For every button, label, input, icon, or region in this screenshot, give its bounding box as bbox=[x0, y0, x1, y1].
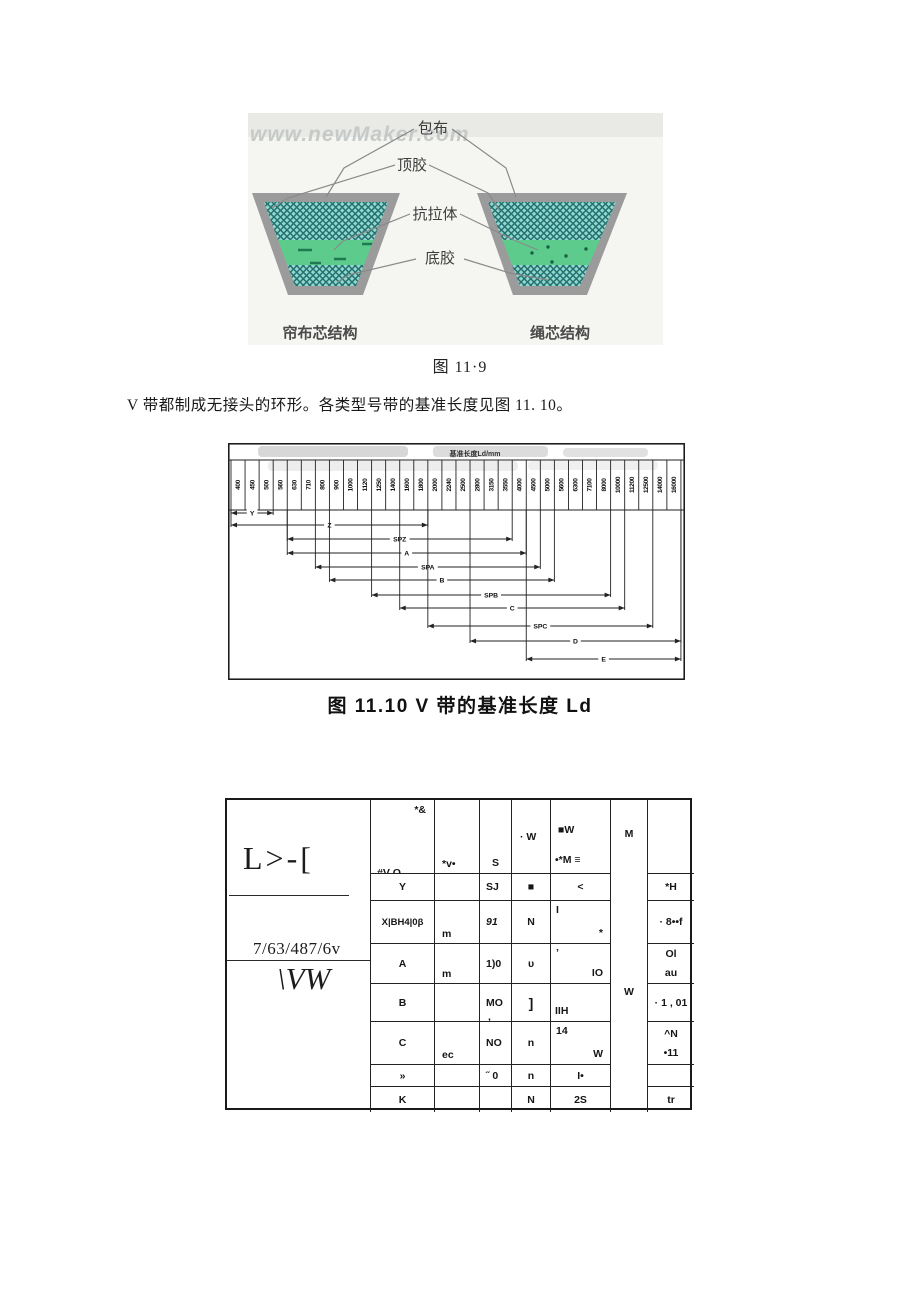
cell-c2 bbox=[434, 983, 479, 1021]
cell-c7: tr bbox=[647, 1086, 694, 1112]
length-tick-label: 1250 bbox=[376, 478, 383, 492]
length-tick-label: 16000 bbox=[671, 476, 678, 493]
length-tick-label: 2800 bbox=[474, 478, 481, 492]
cell-c7: *H bbox=[647, 873, 694, 900]
cell-c4: ] bbox=[511, 983, 550, 1021]
row-label-C: C bbox=[370, 1021, 434, 1064]
cell-c4: N bbox=[511, 900, 550, 943]
cell-c3: 1)0 bbox=[479, 943, 511, 983]
cell-c7: · 8••f bbox=[647, 900, 694, 943]
cell-c2: ec bbox=[434, 1021, 479, 1064]
length-tick-label: 11200 bbox=[629, 476, 636, 493]
length-tick-label: 2500 bbox=[460, 478, 467, 492]
cell-c3: 91 bbox=[479, 900, 511, 943]
belt-range-label: E bbox=[601, 656, 606, 663]
cell-c7: ^N•11 bbox=[647, 1021, 694, 1064]
belt-range-label: C bbox=[510, 605, 515, 612]
row-label-Y: Y bbox=[370, 873, 434, 900]
length-tick-label: 800 bbox=[320, 479, 327, 490]
header-cell-4: · W bbox=[511, 800, 550, 873]
length-tick-label: 1000 bbox=[348, 478, 355, 492]
cell-c3: NO bbox=[479, 1021, 511, 1064]
row-label-»: » bbox=[370, 1064, 434, 1086]
length-tick-label: 3150 bbox=[488, 478, 495, 492]
length-tick-label: 8000 bbox=[601, 478, 608, 492]
data-table: L>-[7/63/487/6v\VW*&#V O*v•S· W■W•*M ≡MW… bbox=[225, 798, 692, 1110]
cell-c3: SJ bbox=[479, 873, 511, 900]
belt-range-E: E bbox=[526, 510, 681, 663]
cell-c5: ’IO bbox=[550, 943, 610, 983]
length-tick-label: 14000 bbox=[657, 476, 664, 493]
length-tick-label: 630 bbox=[291, 479, 298, 490]
cell-c5: < bbox=[550, 873, 610, 900]
length-tick-label: 400 bbox=[235, 479, 242, 490]
fabric-core-label: 帘布芯结构 bbox=[282, 324, 357, 342]
callout-kanglati: 抗拉体 bbox=[412, 206, 457, 223]
header-cell-1: *&#V O bbox=[370, 800, 434, 873]
table-left-panel: L>-[7/63/487/6v\VW bbox=[227, 800, 370, 1112]
cell-c4: n bbox=[511, 1021, 550, 1064]
length-tick-label: 1800 bbox=[418, 478, 425, 492]
row-label-A: A bbox=[370, 943, 434, 983]
belt-range-A: A bbox=[287, 510, 526, 557]
length-tick-label: 2240 bbox=[446, 478, 453, 492]
belt-range-label: A bbox=[404, 550, 409, 557]
cell-c5: I* bbox=[550, 900, 610, 943]
length-chart-content: 基准长度Ld/mm4004505005606307108009001000112… bbox=[228, 444, 685, 679]
cell-c5: 14W bbox=[550, 1021, 610, 1064]
figure-11-10-caption: 图 11.10 V 带的基准长度 Ld bbox=[0, 691, 920, 718]
belt-range-label: B bbox=[439, 577, 444, 584]
cell-c4: υ bbox=[511, 943, 550, 983]
length-tick-label: 2000 bbox=[432, 478, 439, 492]
header-cell-2: *v• bbox=[434, 800, 479, 873]
cell-c5: IIH bbox=[550, 983, 610, 1021]
left-panel-text2: 7/63/487/6v bbox=[253, 939, 341, 959]
cell-c2 bbox=[434, 873, 479, 900]
header-cell-7 bbox=[647, 800, 694, 873]
header-cell-3: S bbox=[479, 800, 511, 873]
belt-range-label: Y bbox=[250, 510, 255, 517]
length-tick-label: 5600 bbox=[559, 478, 566, 492]
length-tick-label: 3550 bbox=[502, 478, 509, 492]
callout-baobu: 包布 bbox=[418, 120, 448, 137]
cell-c7 bbox=[647, 1064, 694, 1086]
length-tick-label: 710 bbox=[306, 479, 313, 490]
chart-title: 基准长度Ld/mm bbox=[449, 449, 501, 458]
row-label-X|BH4|0β: X|BH4|0β bbox=[370, 900, 434, 943]
length-tick-label: 12500 bbox=[643, 476, 650, 493]
cell-c3 bbox=[479, 1086, 511, 1112]
length-tick-label: 500 bbox=[263, 479, 270, 490]
cell-c4: ■ bbox=[511, 873, 550, 900]
row-label-B: B bbox=[370, 983, 434, 1021]
cell-c3: ˝ 0 bbox=[479, 1064, 511, 1086]
left-panel-text1: L>-[ bbox=[243, 840, 314, 877]
cell-c7: Olau bbox=[647, 943, 694, 983]
length-tick-label: 7100 bbox=[587, 478, 594, 492]
length-tick-label: 6300 bbox=[573, 478, 580, 492]
length-tick-label: 560 bbox=[277, 479, 284, 490]
row-label-K: K bbox=[370, 1086, 434, 1112]
length-tick-label: 10000 bbox=[615, 476, 622, 493]
rope-core-label: 绳芯结构 bbox=[530, 324, 590, 342]
belt-range-label: SPB bbox=[484, 592, 498, 599]
cell-c7: · 1 , 01 bbox=[647, 983, 694, 1021]
cell-c3: MO, bbox=[479, 983, 511, 1021]
cell-c5: 2S bbox=[550, 1086, 610, 1112]
length-tick-label: 1120 bbox=[362, 478, 369, 491]
callout-dijiao: 底胶 bbox=[425, 250, 455, 267]
belt-range-B: B bbox=[329, 510, 554, 584]
length-tick-label: 450 bbox=[249, 479, 256, 490]
length-tick-label: 5000 bbox=[545, 478, 552, 492]
cell-c2: m bbox=[434, 943, 479, 983]
cell-c4: n bbox=[511, 1064, 550, 1086]
header-cell-5: ■W•*M ≡ bbox=[550, 800, 610, 873]
document-page: www.newMaker.com bbox=[0, 0, 920, 1301]
body-paragraph: V 带都制成无接头的环形。各类型号带的基准长度见图 11. 10。 bbox=[127, 393, 687, 415]
length-tick-label: 4000 bbox=[516, 478, 523, 492]
cell-c4: N bbox=[511, 1086, 550, 1112]
cell-c2: m bbox=[434, 900, 479, 943]
length-tick-label: 900 bbox=[334, 479, 341, 490]
left-panel-text3: \VW bbox=[277, 961, 330, 997]
length-tick-label: 1400 bbox=[390, 478, 397, 492]
length-chart: 基准长度Ld/mm4004505005606307108009001000112… bbox=[228, 443, 685, 680]
cell-c2 bbox=[434, 1064, 479, 1086]
figure-11-9-caption: 图 11·9 bbox=[0, 353, 920, 377]
cell-c2 bbox=[434, 1086, 479, 1112]
belt-structure-figure: www.newMaker.com bbox=[248, 113, 663, 345]
length-tick-label: 1600 bbox=[404, 478, 411, 492]
merged-cell: MW bbox=[610, 800, 647, 1112]
length-tick-label: 4500 bbox=[530, 478, 537, 492]
callout-dingjiao: 顶胶 bbox=[397, 157, 427, 174]
cell-c5: I• bbox=[550, 1064, 610, 1086]
belt-range-label: SPC bbox=[533, 623, 547, 630]
belt-range-label: D bbox=[573, 638, 578, 645]
